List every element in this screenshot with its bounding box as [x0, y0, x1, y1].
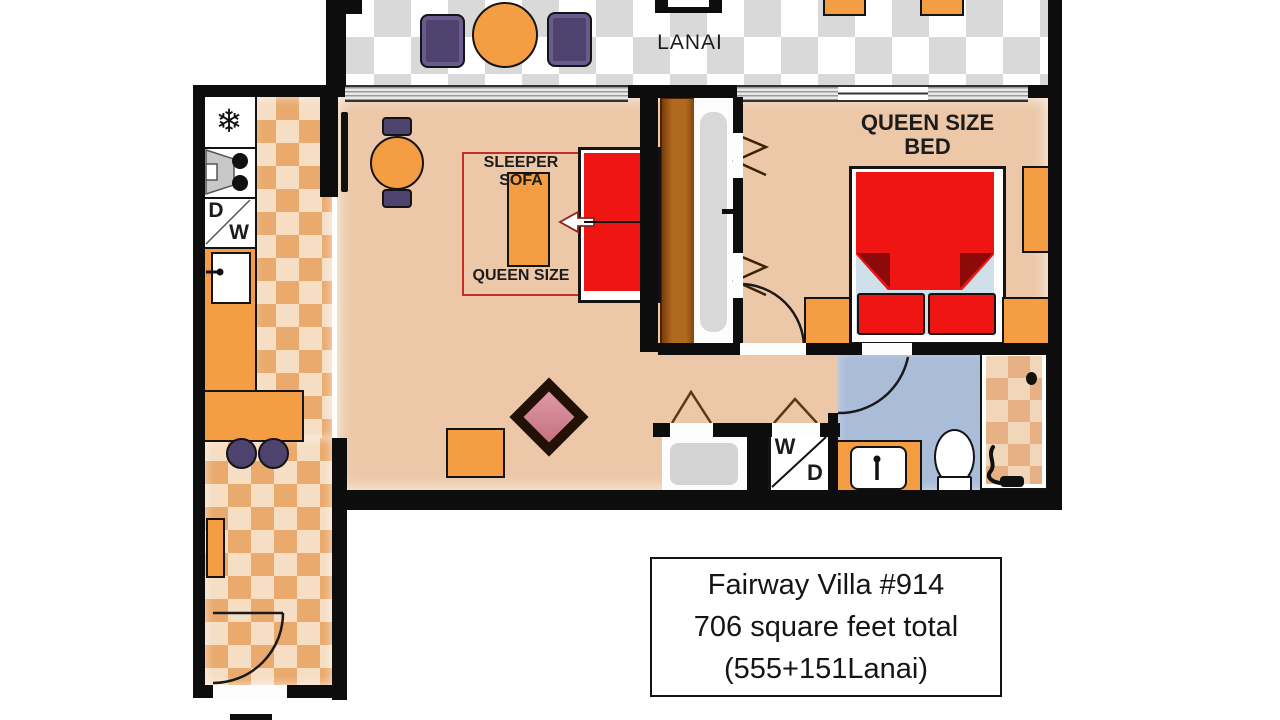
floor-plan: ❄ D W SLEEPER SOFA QUEEN SIZE QUEEN SIZE…	[0, 0, 1280, 720]
stove-hood-vent	[206, 164, 217, 180]
info-line-2: 706 square feet total	[652, 606, 1000, 648]
wall-bedroom-bottom-b	[806, 343, 862, 355]
sliding-door-living	[345, 85, 628, 102]
sleeper-size-label: QUEEN SIZE	[462, 267, 580, 285]
wall-lanai-left-nub	[326, 0, 362, 14]
wall-entry-bottom-right	[287, 685, 347, 698]
dryer-letter: D	[802, 460, 828, 486]
entry-door-arc	[213, 613, 283, 683]
wall-bedroom-bottom-a	[658, 343, 740, 355]
kitchen-faucet-dot	[217, 269, 224, 276]
wall-left	[193, 85, 205, 698]
bedroom-door-arc	[740, 284, 804, 348]
wall-entry-bottom-left	[193, 685, 213, 698]
wall-closet-jamb-1	[653, 423, 670, 437]
closet-door-triangle	[672, 392, 711, 423]
wall-bottom-main	[337, 490, 1062, 510]
bath-faucet-icon	[874, 456, 881, 463]
burner-icon-1	[232, 153, 248, 169]
walkway-mark	[230, 714, 272, 720]
wall-bedroom-west-2	[733, 178, 743, 253]
sill-bathroom-door	[862, 343, 912, 355]
wall-right	[1048, 0, 1062, 510]
bathroom-door-arc	[838, 357, 908, 413]
wall-top-right-corner	[1028, 85, 1062, 98]
info-box: Fairway Villa #914 706 square feet total…	[650, 557, 1002, 697]
shower-hose-icon	[989, 447, 1000, 483]
wall-closet-divider	[747, 433, 768, 490]
dishwasher-letter-w: W	[227, 221, 251, 245]
sill-bedroom-closet-1	[733, 133, 743, 178]
dishwasher-letter-d: D	[206, 199, 226, 223]
wall-bedroom-west-3	[733, 298, 743, 343]
sliding-door-bedroom-b	[928, 85, 1028, 102]
sill-bedroom-door	[740, 343, 806, 355]
snowflake-icon: ❄	[203, 102, 255, 140]
washer-letter: W	[772, 434, 798, 460]
mirror-closet-split	[722, 209, 734, 214]
wall-mid-divider	[640, 93, 658, 352]
wall-hall-east	[332, 438, 347, 700]
laundry-door-triangle	[774, 399, 817, 423]
info-line-3: (555+151Lanai)	[652, 648, 1000, 690]
wall-bedroom-bottom-c	[912, 343, 1062, 355]
sill-bedroom-closet-2	[733, 253, 743, 298]
sleeper-sofa-label: SLEEPER SOFA	[462, 154, 580, 190]
burner-icon-2	[232, 175, 248, 191]
wall-kitchen-divider	[320, 85, 338, 197]
bedroom-window	[838, 85, 928, 102]
sill-entry-door	[213, 685, 287, 698]
bedroom-label-line1: QUEEN SIZE	[845, 110, 1010, 136]
info-line-1: Fairway Villa #914	[652, 564, 1000, 606]
sill-closet-1	[670, 423, 713, 437]
wall-bedroom-west-1	[733, 97, 743, 133]
sliding-door-bedroom-a	[737, 85, 838, 102]
wall-bath-west	[828, 413, 838, 490]
bedroom-label-line2: BED	[845, 134, 1010, 160]
